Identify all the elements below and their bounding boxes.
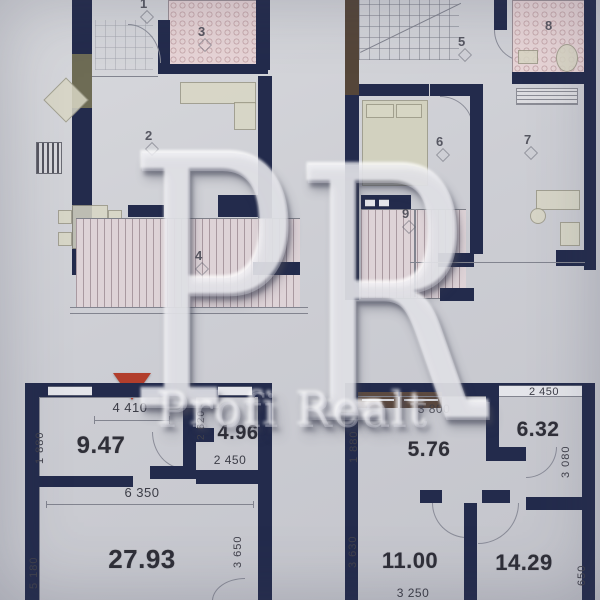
watermark: P R Profi Realt (0, 0, 600, 600)
floor-plan-photo: 1 3 2 4 5 (0, 0, 600, 600)
watermark-name: Profi Realt (158, 384, 429, 438)
